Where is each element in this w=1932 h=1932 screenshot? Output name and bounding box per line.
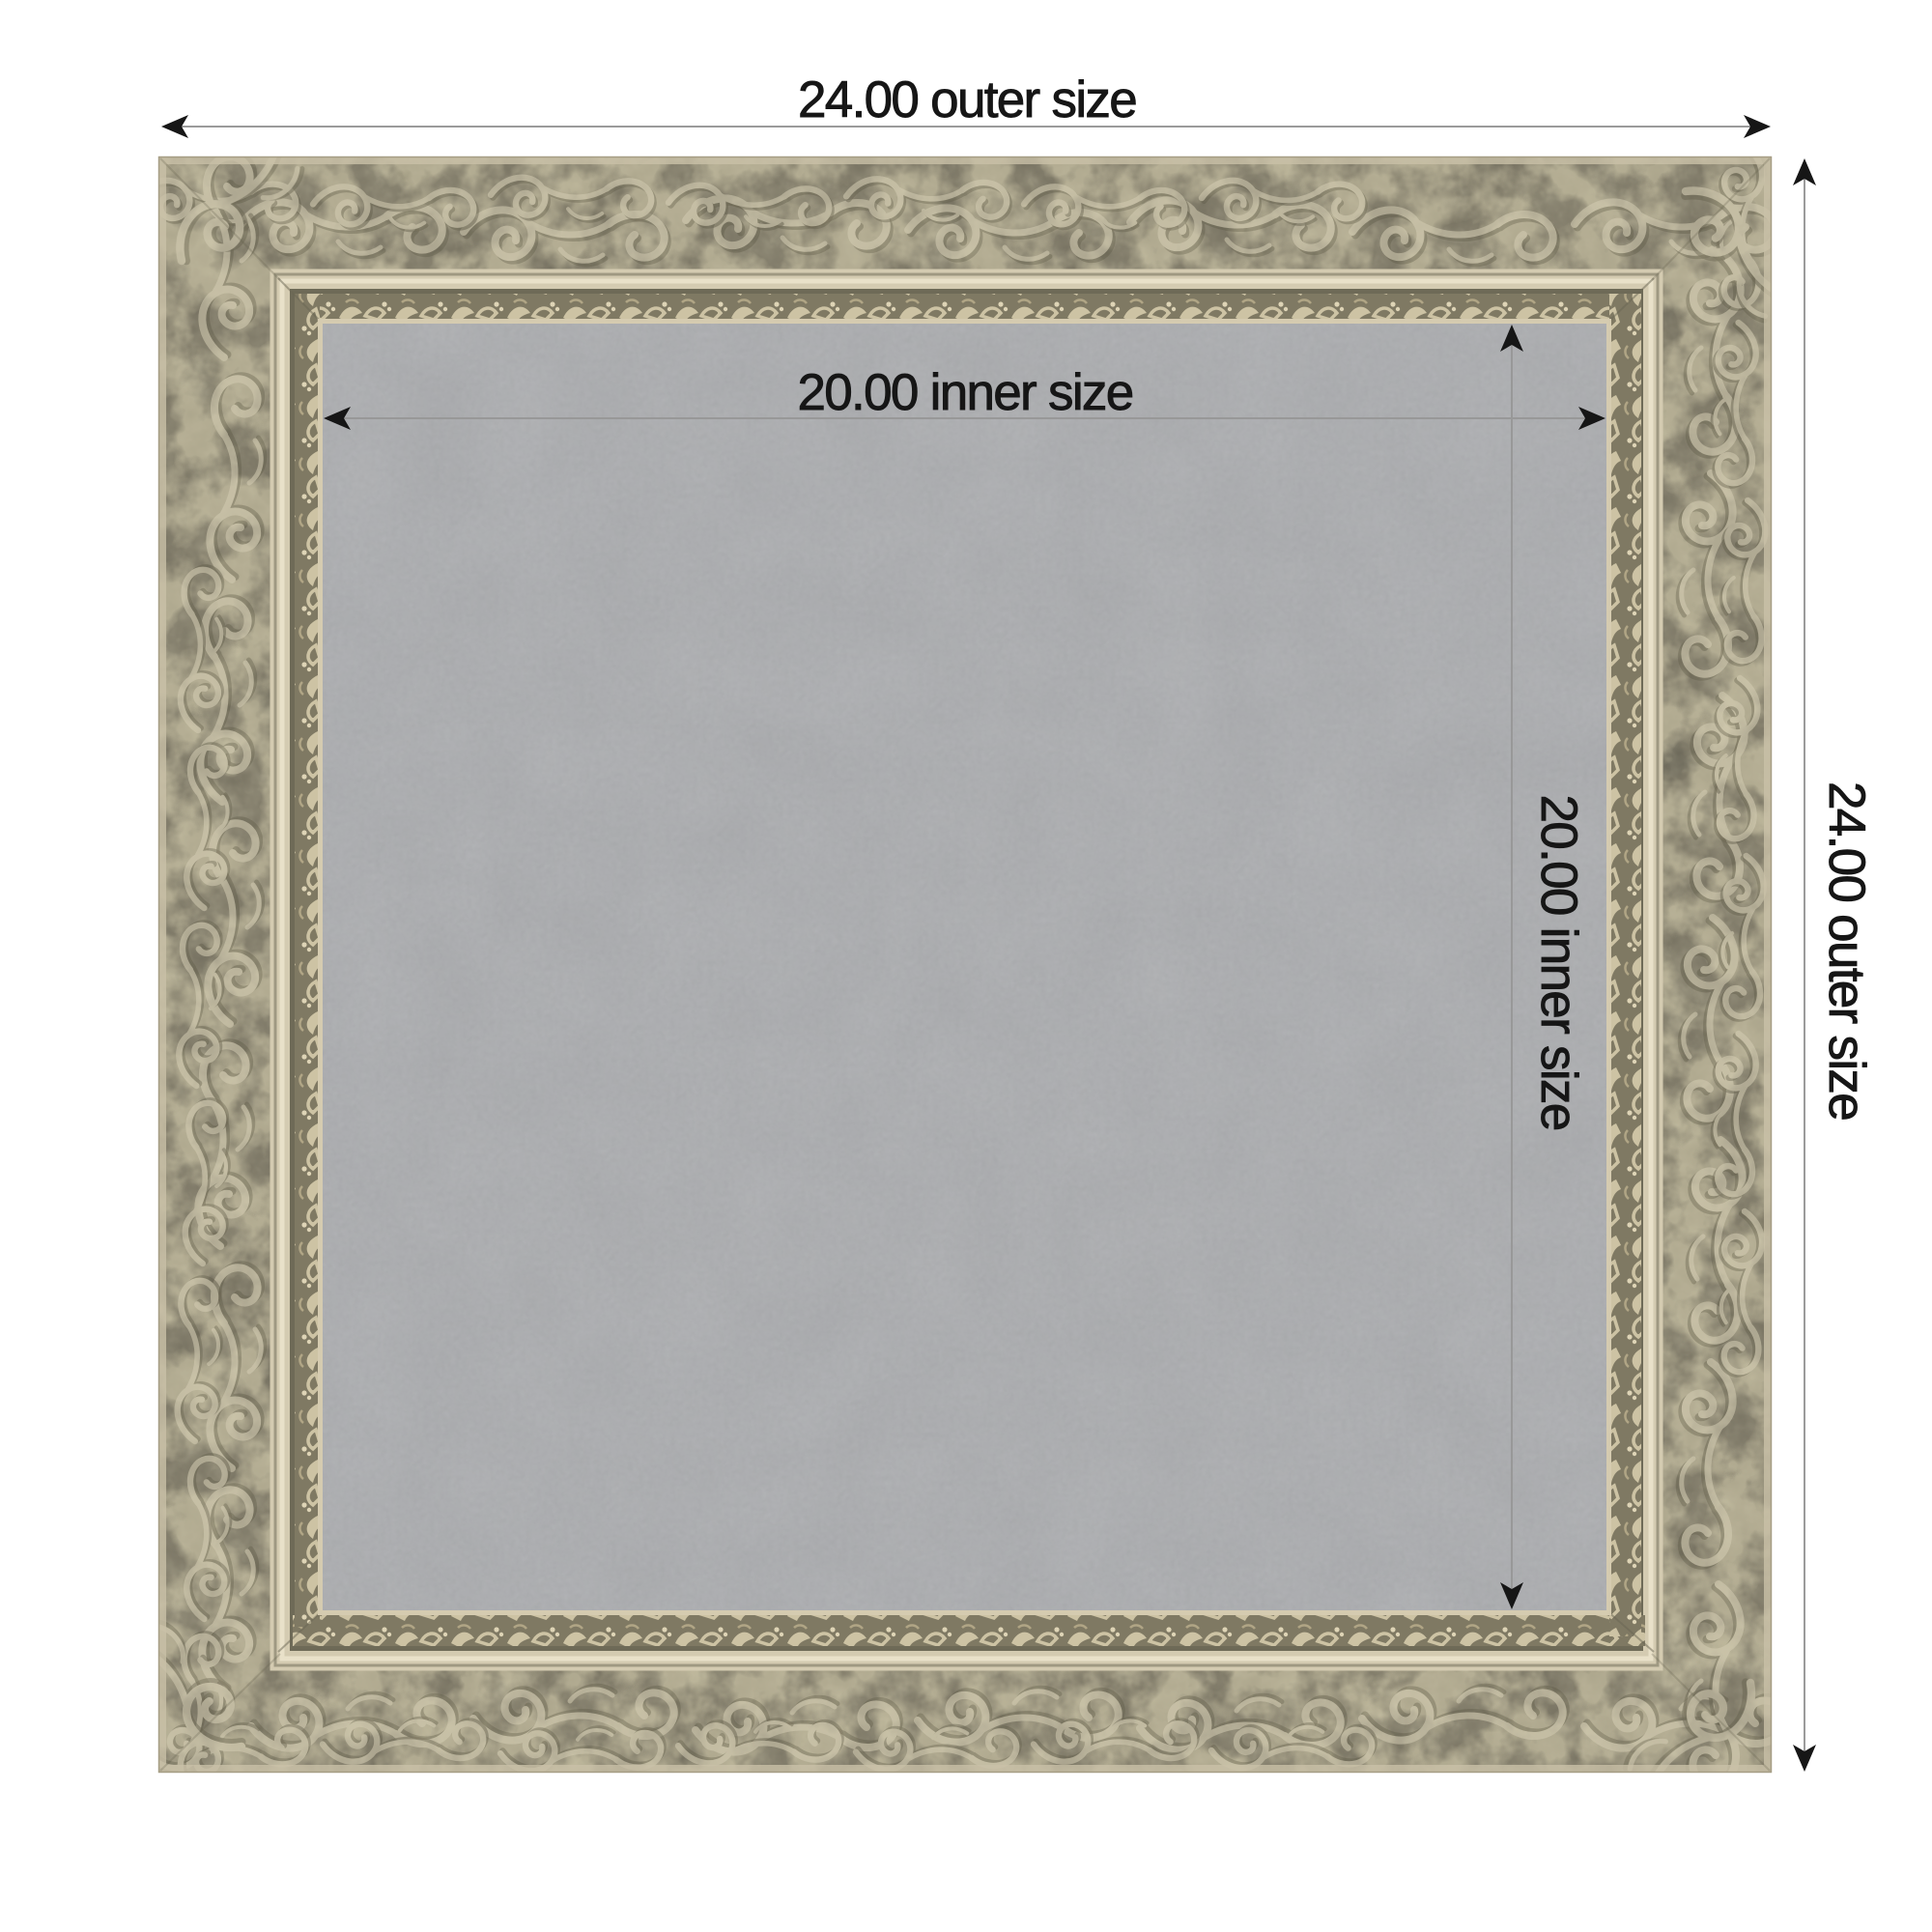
svg-text:24.00 outer size: 24.00 outer size xyxy=(1818,781,1875,1120)
svg-text:20.00 inner size: 20.00 inner size xyxy=(1530,795,1587,1130)
svg-text:24.00 outer size: 24.00 outer size xyxy=(798,71,1136,128)
svg-text:20.00 inner size: 20.00 inner size xyxy=(798,364,1133,421)
